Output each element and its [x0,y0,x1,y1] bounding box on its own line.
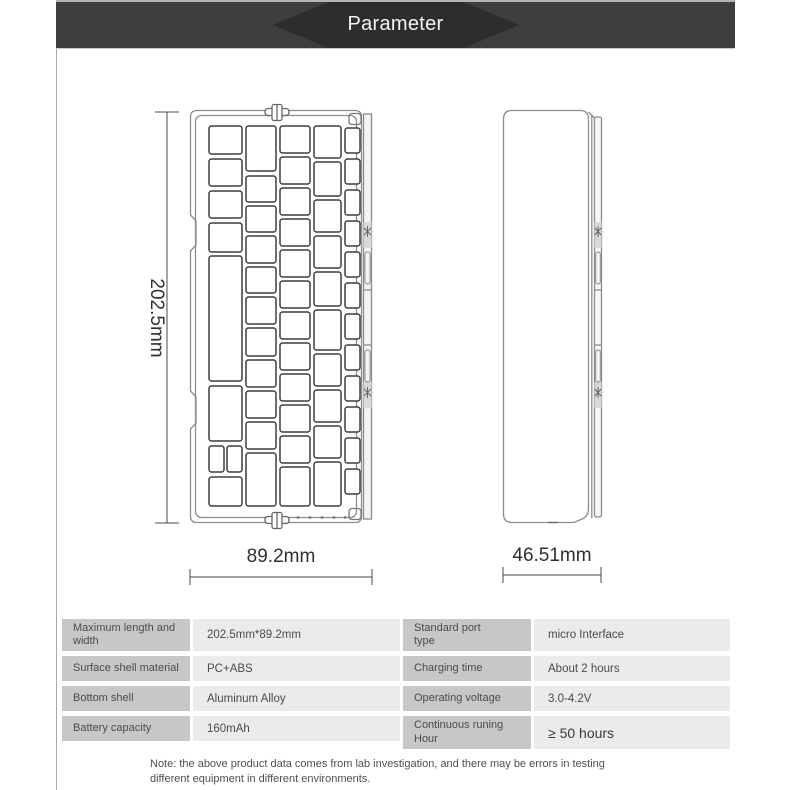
spec-row: Surface shell materialPC+ABS [62,656,400,681]
front-width-dimension-label: 89.2mm [247,546,316,567]
height-dimension-label: 202.5mm [146,278,167,357]
spec-row: Charging timeAbout 2 hours [403,656,730,681]
spec-row-label: Continuous runing Hour [403,716,531,748]
spec-row-label: Battery capacity [62,716,190,741]
spec-row-label: Surface shell material [62,656,190,681]
side-width-dimension-label: 46.51mm [512,545,591,566]
spec-row-label: Charging time [403,656,531,681]
spec-row-value: ≥ 50 hours [534,716,730,748]
spec-row-label: Maximum length and width [62,619,190,651]
spec-row-value: About 2 hours [534,656,730,681]
spec-row-value: PC+ABS [193,656,400,681]
spec-row-value: 202.5mm*89.2mm [193,619,400,651]
spec-row-label: Bottom shell [62,686,190,711]
note-text: Note: the above product data comes from … [150,757,644,786]
parameter-page: Parameter [0,0,790,790]
side-view-drawing [504,111,602,523]
spec-row: Continuous runing Hour≥ 50 hours [403,716,730,748]
top-latch [265,105,289,121]
spec-row: Maximum length and width202.5mm*89.2mm [62,619,400,651]
spec-row: Bottom shellAluminum Alloy [62,686,400,711]
front-view-drawing [191,105,372,529]
spec-row: Battery capacity160mAh [62,716,400,741]
keyboard-keys [209,126,360,506]
bottom-latch [265,513,289,529]
spec-row-label: Operating voltage [403,686,531,711]
spec-row-value: Aluminum Alloy [193,686,400,711]
spec-table-right: Standard port typemicro InterfaceChargin… [403,619,730,754]
spec-row: Standard port typemicro Interface [403,619,730,651]
spec-row-label: Standard port type [403,619,531,651]
spec-row: Operating voltage3.0-4.2V [403,686,730,711]
spec-row-value: 160mAh [193,716,400,741]
spec-row-value: micro Interface [534,619,730,651]
spec-table-left: Maximum length and width202.5mm*89.2mmSu… [62,619,400,746]
spec-row-value: 3.0-4.2V [534,686,730,711]
